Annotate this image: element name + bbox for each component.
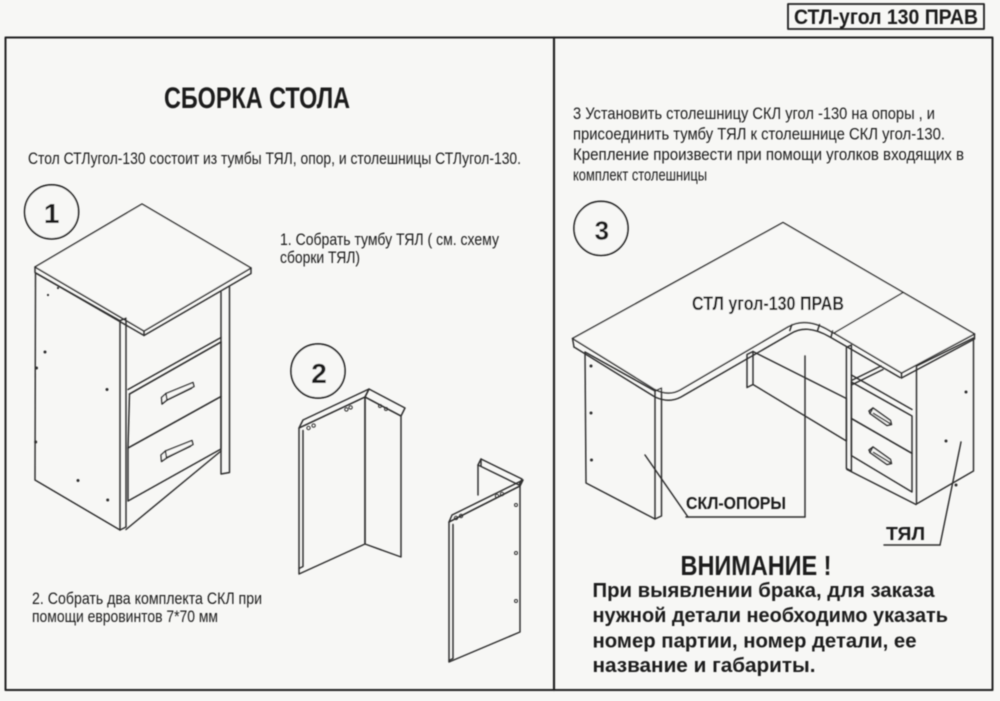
svg-text:СТЛ-угол 130 ПРАВ: СТЛ-угол 130 ПРАВ xyxy=(794,6,978,29)
svg-text:присоединить тумбу ТЯЛ к столе: присоединить тумбу ТЯЛ к столешнице СКЛ … xyxy=(573,126,945,144)
svg-text:СКЛ-ОПОРЫ: СКЛ-ОПОРЫ xyxy=(686,493,786,513)
svg-text:сборки ТЯЛ): сборки ТЯЛ) xyxy=(280,249,360,267)
svg-text:2. Собрать два комплекта СКЛ: 2. Собрать два комплекта СКЛ при xyxy=(32,590,262,608)
svg-text:ТЯЛ: ТЯЛ xyxy=(886,524,925,544)
svg-text:Стол СТЛугол-130 состоит из ту: Стол СТЛугол-130 состоит из тумбы ТЯЛ, о… xyxy=(28,150,521,168)
svg-text:3 Установить столешницу СКЛ у: 3 Установить столешницу СКЛ угол -130 на… xyxy=(573,105,935,123)
svg-text:3: 3 xyxy=(595,215,609,245)
svg-text:номер партии, номер детали, ее: номер партии, номер детали, ее xyxy=(593,631,917,653)
svg-text:ВНИМАНИЕ !: ВНИМАНИЕ ! xyxy=(681,550,832,581)
svg-text:При выявлении брака, для заказ: При выявлении брака, для заказа xyxy=(593,580,936,602)
svg-text:1: 1 xyxy=(44,198,60,229)
svg-text:Крепление произвести при помощ: Крепление произвести при помощи уголков … xyxy=(573,146,964,164)
svg-text:СТЛ угол-130 ПРАВ: СТЛ угол-130 ПРАВ xyxy=(692,293,844,315)
svg-text:комплект столешницы: комплект столешницы xyxy=(573,167,707,185)
svg-text:название и габариты.: название и габариты. xyxy=(593,655,816,677)
svg-text:2: 2 xyxy=(311,358,327,389)
svg-text:нужной детали необходимо указа: нужной детали необходимо указать xyxy=(593,605,949,627)
svg-text:СБОРКА СТОЛА: СБОРКА СТОЛА xyxy=(164,82,350,115)
svg-text:1. Собрать тумбу ТЯЛ ( см. сх: 1. Собрать тумбу ТЯЛ ( см. схему xyxy=(280,231,500,249)
svg-text:помощи евровинтов 7*70 мм: помощи евровинтов 7*70 мм xyxy=(32,608,218,626)
